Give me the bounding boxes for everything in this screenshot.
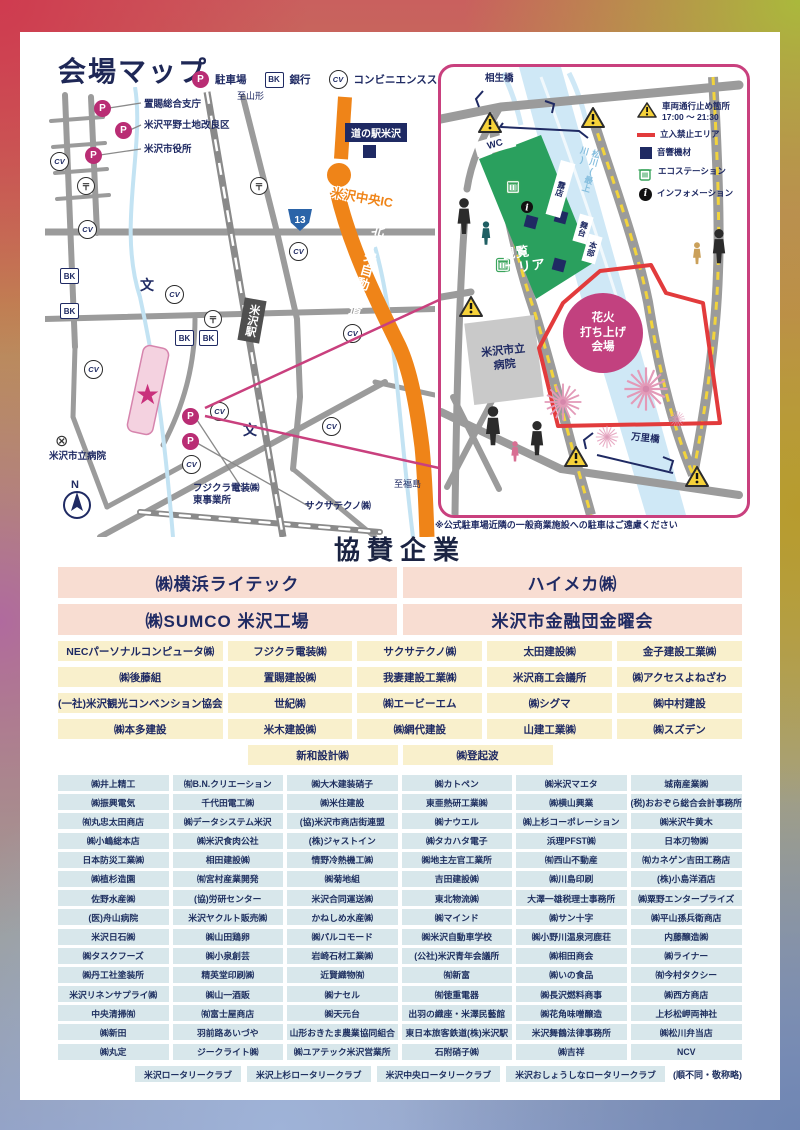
sponsor-item-tier3: ㈱長沢燃料商事 <box>516 986 627 1002</box>
street-map-drawing <box>45 87 435 537</box>
sponsor-item-tier3: 上杉松岬両神社 <box>631 1005 742 1021</box>
sponsor-item-tier3: ㈱天元台 <box>287 1005 398 1021</box>
sponsor-item-tier2: NECパーソナルコンピュータ㈱ <box>58 641 223 661</box>
aioi-bridge-label: 相生橋 <box>485 73 514 85</box>
sponsor-item-tier3: 出羽の織座・米澤民藝館 <box>402 1005 513 1021</box>
sponsor-item-tier3: ㈱カトペン <box>402 775 513 791</box>
street-map: 至山形 至福島 P P P P P 置賜総合支庁 米沢平野土地改良区 米沢市役所… <box>45 87 435 537</box>
sponsor-item-tier3: 相田建設㈱ <box>173 852 284 868</box>
sponsor-item-tier3: ㈱ナウエル <box>402 813 513 829</box>
sponsor-item-rotary: 米沢ロータリークラブ <box>135 1066 241 1082</box>
sponsor-item-tier3: ㈱小泉創芸 <box>173 948 284 964</box>
legend-eco-station: エコステーション <box>637 166 733 181</box>
info-icon: i <box>639 188 652 201</box>
sponsor-tier4-row: 米沢ロータリークラブ米沢上杉ロータリークラブ米沢中央ロータリークラブ米沢おしょう… <box>58 1066 742 1082</box>
sponsor-item-tier3: ㈲富士屋商店 <box>173 1005 284 1021</box>
sponsor-tier4-grid: 米沢ロータリークラブ米沢上杉ロータリークラブ米沢中央ロータリークラブ米沢おしょう… <box>135 1066 665 1082</box>
parking-marker: P <box>182 433 199 450</box>
fireworks-launch-site: 花火 打ち上げ 会場 <box>563 293 643 373</box>
land-improvement-label: 米沢平野土地改良区 <box>144 120 230 132</box>
sponsor-item-tier3: 浜理PFST㈱ <box>516 833 627 849</box>
post-office-marker: 〒 <box>250 177 268 195</box>
sponsor-item-tier3: ㈱米沢自動車学校 <box>402 929 513 945</box>
convenience-marker: CV <box>78 220 97 239</box>
bank-icon: BK <box>265 72 284 88</box>
sponsor-item-tier3: (公社)米沢青年会議所 <box>402 948 513 964</box>
sponsor-item-rotary: 米沢中央ロータリークラブ <box>377 1066 501 1082</box>
sponsor-item-tier3: ㈱小野川温泉河鹿荘 <box>516 929 627 945</box>
convenience-marker: CV <box>343 324 362 343</box>
parking-icon: P <box>192 71 209 88</box>
parking-marker: P <box>115 122 132 139</box>
venue-map: i <box>438 64 750 518</box>
sponsor-item-tier3: 東亜熱研工業㈱ <box>402 794 513 810</box>
sponsor-item-tier3: 岩崎石材工業㈱ <box>287 948 398 964</box>
sponsor-item-tier3: かねしめ水産㈱ <box>287 909 398 925</box>
sponsor-item-tier3: ㈱山一酒販 <box>173 986 284 1002</box>
leader-lines <box>100 103 310 507</box>
parking-marker: P <box>94 100 111 117</box>
sponsor-item-tier3: ㈱相田商会 <box>516 948 627 964</box>
sponsor-item-tier2: 置賜建設㈱ <box>228 667 353 687</box>
sponsor-item-tier3: ジークライト㈱ <box>173 1044 284 1060</box>
sponsor-item-tier3: (医)舟山病院 <box>58 909 169 925</box>
sponsor-item-tier3: NCV <box>631 1044 742 1060</box>
city-hospital-label: 米沢市立病院 <box>49 451 106 463</box>
legend-no-entry-label: 立入禁止エリア <box>660 129 720 140</box>
sponsor-item-tier1: ㈱横浜ライテック <box>58 567 397 598</box>
inset-legend: 車両通行止め箇所 17:00 〜 21:30 立入禁止エリア 音響機材 エコステ… <box>637 101 733 201</box>
sponsor-item-tier3: ㈱米沢マエタ <box>516 775 627 791</box>
sponsor-item-tier2: 山建工業㈱ <box>487 719 612 739</box>
convenience-marker: CV <box>289 242 308 261</box>
legend-no-entry: 立入禁止エリア <box>637 129 733 140</box>
sponsor-item-tier3: 米沢日石㈱ <box>58 929 169 945</box>
sponsor-tier2b-grid: 新和設計㈱㈱登起波 <box>58 745 742 765</box>
sponsor-item-tier3: ㈱丹工社塗装所 <box>58 967 169 983</box>
sponsor-item-tier3: ㈱吉祥 <box>516 1044 627 1060</box>
city-hall-label: 米沢市役所 <box>144 144 192 156</box>
sponsor-item-tier3: 山形おきたま農業協同組合 <box>287 1024 398 1040</box>
sponsor-item-tier3: 東北物流㈱ <box>402 890 513 906</box>
sponsor-item-tier3: ㈱花角味噌醸造 <box>516 1005 627 1021</box>
sponsor-item-tier3: ㈱マインド <box>402 909 513 925</box>
legend-road-closure-label: 車両通行止め箇所 <box>662 101 730 111</box>
sponsor-item-tier2: ㈱エービーエム <box>357 693 482 713</box>
sponsor-item-tier3: 吉田建設㈱ <box>402 871 513 887</box>
sponsor-item-tier3: (株)小島洋酒店 <box>631 871 742 887</box>
post-office-marker: 〒 <box>77 177 95 195</box>
sponsor-item-tier2: ㈱スズデン <box>617 719 742 739</box>
sponsor-item-tier2b: 新和設計㈱ <box>248 745 398 765</box>
sponsor-item-tier3: ㈲新富 <box>402 967 513 983</box>
sponsor-item-tier3: (協)労研センター <box>173 890 284 906</box>
sponsor-item-tier1: 米沢市金融団金曜会 <box>403 604 742 635</box>
hospital-marker: ⊗ <box>55 431 68 451</box>
fujikura-label: フジクラ電装㈱ 東事業所 <box>193 483 260 507</box>
sponsor-item-tier3: ㈱いの食品 <box>516 967 627 983</box>
sponsor-item-tier3: ㈱山田鶏卵 <box>173 929 284 945</box>
legend-road-closure: 車両通行止め箇所 17:00 〜 21:30 <box>637 101 733 122</box>
sponsor-item-tier3: ㈱米沢牛黄木 <box>631 813 742 829</box>
sponsor-item-tier3: ㈱菊地組 <box>287 871 398 887</box>
sponsor-item-tier3: (協)米沢市商店街連盟 <box>287 813 398 829</box>
convenience-marker: CV <box>50 152 69 171</box>
sponsor-item-tier3: ㈱川島印刷 <box>516 871 627 887</box>
sponsor-item-tier3: ㈱タカハタ電子 <box>402 833 513 849</box>
sponsor-item-tier2: 金子建設工業㈱ <box>617 641 742 661</box>
sponsor-item-tier3: ㈱西方商店 <box>631 986 742 1002</box>
sponsor-item-tier1: ハイメカ㈱ <box>403 567 742 598</box>
sponsor-item-tier3: 情野冷熱機工㈱ <box>287 852 398 868</box>
sponsor-item-tier3: ㈱ナセル <box>287 986 398 1002</box>
svg-text:i: i <box>525 204 529 214</box>
convenience-marker: CV <box>322 417 341 436</box>
map-title: 会場マップ <box>58 50 208 90</box>
navy-square-icon <box>640 147 652 159</box>
sponsor-item-tier3: ㈲カネゲン吉田工務店 <box>631 852 742 868</box>
sponsor-item-tier3: ㈱米住建設 <box>287 794 398 810</box>
convenience-marker: CV <box>84 360 103 379</box>
sponsor-item-tier2b: ㈱登起波 <box>403 745 553 765</box>
legend-information: i インフォメーション <box>637 188 733 201</box>
content-panel: 会場マップ P 駐車場 BK 銀行 CV コンビニエンスストア <box>20 32 780 1100</box>
legend-sound-label: 音響機材 <box>657 147 691 158</box>
sponsor-item-tier3: ㈱上杉コーポレーション <box>516 813 627 829</box>
sponsor-item-tier3: ㈱新田 <box>58 1024 169 1040</box>
sponsor-item-tier2: 米木建設㈱ <box>228 719 353 739</box>
to-fukushima-label: 至福島 <box>394 479 421 490</box>
sponsor-tier1-grid: ㈱横浜ライテックハイメカ㈱㈱SUMCO 米沢工場米沢市金融団金曜会 <box>58 567 742 635</box>
michinoeki-label: 道の駅米沢 <box>345 123 407 142</box>
sponsor-item-tier3: ㈱サン十字 <box>516 909 627 925</box>
bank-label: 銀行 <box>290 72 311 87</box>
sponsor-item-tier3: ㈲今村タクシー <box>631 967 742 983</box>
sponsor-item-tier3: ㈱米沢食肉公社 <box>173 833 284 849</box>
sponsor-item-tier3: ㈱データシステム米沢 <box>173 813 284 829</box>
school-marker: 文 <box>243 420 257 440</box>
sponsor-item-tier3: 羽前路あいづや <box>173 1024 284 1040</box>
sponsor-item-tier3: ㈱横山興業 <box>516 794 627 810</box>
sponsor-item-tier2: ㈱網代建設 <box>357 719 482 739</box>
sponsor-item-tier2: 我妻建設工業㈱ <box>357 667 482 687</box>
sponsor-item-tier2: 太田建設㈱ <box>487 641 612 661</box>
legend-info-label: インフォメーション <box>657 188 733 199</box>
sponsor-item-tier2: (一社)米沢観光コンベンション協会 <box>58 693 223 713</box>
eco-station-marker <box>507 181 520 194</box>
sponsor-item-tier3: 日本防災工業㈱ <box>58 852 169 868</box>
sponsor-item-tier3: ㈱小嶋総本店 <box>58 833 169 849</box>
sponsor-item-rotary: 米沢おしょうしなロータリークラブ <box>506 1066 665 1082</box>
sponsor-tier3-grid: ㈱井上精工㈲B.N.クリエーション㈱大木建装硝子㈱カトペン㈱米沢マエタ城南産業㈱… <box>58 775 742 1060</box>
bank-marker: BK <box>60 268 79 284</box>
convenience-marker: CV <box>210 402 229 421</box>
bank-marker: BK <box>175 330 194 346</box>
sponsor-item-tier3: 米沢合同運送㈱ <box>287 890 398 906</box>
parking-label: 駐車場 <box>215 72 247 87</box>
okitama-office-label: 置賜総合支庁 <box>144 99 201 111</box>
venue-star: ★ <box>135 381 160 409</box>
school-marker: 文 <box>140 275 154 295</box>
parking-marker: P <box>85 147 102 164</box>
legend-road-closure-time: 17:00 〜 21:30 <box>662 112 719 122</box>
sponsor-item-tier3: ㈱ユアテック米沢営業所 <box>287 1044 398 1060</box>
sponsor-item-tier2: 米沢商工会議所 <box>487 667 612 687</box>
sponsor-item-tier2: サクサテクノ㈱ <box>357 641 482 661</box>
sponsor-item-tier3: ㈱丸定 <box>58 1044 169 1060</box>
sponsor-item-tier2: 世紀㈱ <box>228 693 353 713</box>
sponsor-item-tier2: ㈱中村建設 <box>617 693 742 713</box>
sponsor-item-tier3: ㈱ライナー <box>631 948 742 964</box>
sponsor-item-tier3: 米沢リネンサプライ㈱ <box>58 986 169 1002</box>
sponsor-item-tier3: 城南産業㈱ <box>631 775 742 791</box>
sponsor-item-tier2: ㈱アクセスよねざわ <box>617 667 742 687</box>
warning-icon <box>637 101 657 118</box>
sponsor-item-tier3: ㈱パルコモード <box>287 929 398 945</box>
sponsor-tier2-grid: NECパーソナルコンピュータ㈱フジクラ電装㈱サクサテクノ㈱太田建設㈱金子建設工業… <box>58 641 742 739</box>
sponsor-item-tier3: 内藤醸造㈱ <box>631 929 742 945</box>
sponsor-item-tier3: ㈱植杉造園 <box>58 871 169 887</box>
sponsor-item-tier3: (税)おおぞら総合会計事務所 <box>631 794 742 810</box>
order-note: (順不同・敬称略) <box>673 1068 742 1081</box>
viewing-area-label: 観覧 エリア <box>501 242 547 277</box>
sponsor-item-tier3: ㈱タスクフーズ <box>58 948 169 964</box>
sponsors-title: 協賛企業 <box>20 530 780 567</box>
sponsor-item-tier3: ㈱大木建装硝子 <box>287 775 398 791</box>
sponsor-item-tier3: ㈱地主左官工業所 <box>402 852 513 868</box>
sponsor-item-tier3: ㈲B.N.クリエーション <box>173 775 284 791</box>
sponsor-item-tier2: ㈱本多建設 <box>58 719 223 739</box>
sponsor-item-tier3: 石附硝子㈱ <box>402 1044 513 1060</box>
sponsor-item-tier3: ㈲丸忠太田商店 <box>58 813 169 829</box>
sponsor-item-tier3: ㈲宮村産業開発 <box>173 871 284 887</box>
red-line-icon <box>637 133 655 137</box>
sponsor-item-tier3: 米沢舞鶴法律事務所 <box>516 1024 627 1040</box>
sponsor-item-tier2: ㈱シグマ <box>487 693 612 713</box>
sponsor-item-tier1: ㈱SUMCO 米沢工場 <box>58 604 397 635</box>
sponsor-item-tier3: ㈲西山不動産 <box>516 852 627 868</box>
bank-marker: BK <box>60 303 79 319</box>
sponsor-item-tier3: 中央清掃㈲ <box>58 1005 169 1021</box>
parking-marker: P <box>182 408 199 425</box>
sponsor-item-tier3: 米沢ヤクルト販売㈱ <box>173 909 284 925</box>
sponsor-item-tier3: 千代田電工㈱ <box>173 794 284 810</box>
flyer-page: 会場マップ P 駐車場 BK 銀行 CV コンビニエンスストア <box>0 0 800 1130</box>
convenience-marker: CV <box>182 455 201 474</box>
sponsor-item-tier3: 近賢織物㈲ <box>287 967 398 983</box>
sponsor-item-tier3: ㈱振興電気 <box>58 794 169 810</box>
sponsor-item-tier3: ㈱平山孫兵衛商店 <box>631 909 742 925</box>
convenience-marker: CV <box>165 285 184 304</box>
sponsor-item-tier3: ㈱井上精工 <box>58 775 169 791</box>
to-yamagata-label: 至山形 <box>237 91 264 102</box>
michinoeki-marker <box>363 145 376 158</box>
compass <box>64 492 90 518</box>
north-label: N <box>71 479 79 491</box>
sponsor-item-tier3: 日本刃物㈱ <box>631 833 742 849</box>
trash-icon <box>637 166 653 181</box>
sponsor-item-rotary: 米沢上杉ロータリークラブ <box>247 1066 371 1082</box>
bank-marker: BK <box>199 330 218 346</box>
sponsor-item-tier2: フジクラ電装㈱ <box>228 641 353 661</box>
sponsor-item-tier3: 大澤一雄税理士事務所 <box>516 890 627 906</box>
legend-eco-label: エコステーション <box>658 166 726 177</box>
sponsor-item-tier3: 精英堂印刷㈱ <box>173 967 284 983</box>
sponsor-item-tier3: 佐野水産㈱ <box>58 890 169 906</box>
post-office-marker: 〒 <box>204 310 222 328</box>
sponsor-item-tier2: ㈱後藤組 <box>58 667 223 687</box>
legend-sound-equipment: 音響機材 <box>637 147 733 159</box>
sponsor-item-tier3: ㈱松川弁当店 <box>631 1024 742 1040</box>
sponsor-item-tier3: ㈱粟野エンタープライズ <box>631 890 742 906</box>
sponsor-item-tier3: 東日本旅客鉄道(株)米沢駅 <box>402 1024 513 1040</box>
saxa-label: サクサテクノ㈱ <box>305 501 371 513</box>
sponsor-item-tier3: (株)ジャストイン <box>287 833 398 849</box>
sponsor-item-tier3: ㈲徳重電器 <box>402 986 513 1002</box>
